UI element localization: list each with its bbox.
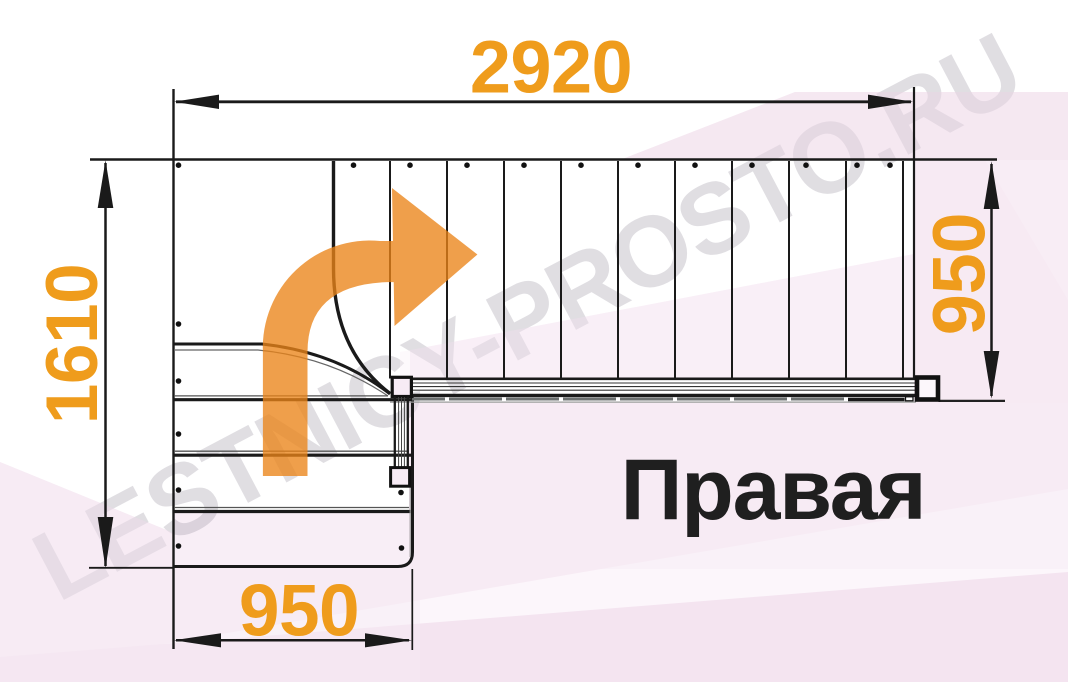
svg-text:2920: 2920 bbox=[470, 26, 632, 109]
svg-text:950: 950 bbox=[239, 571, 359, 652]
svg-text:1610: 1610 bbox=[32, 264, 113, 424]
svg-text:Правая: Правая bbox=[621, 442, 926, 538]
svg-text:950: 950 bbox=[918, 213, 1001, 336]
